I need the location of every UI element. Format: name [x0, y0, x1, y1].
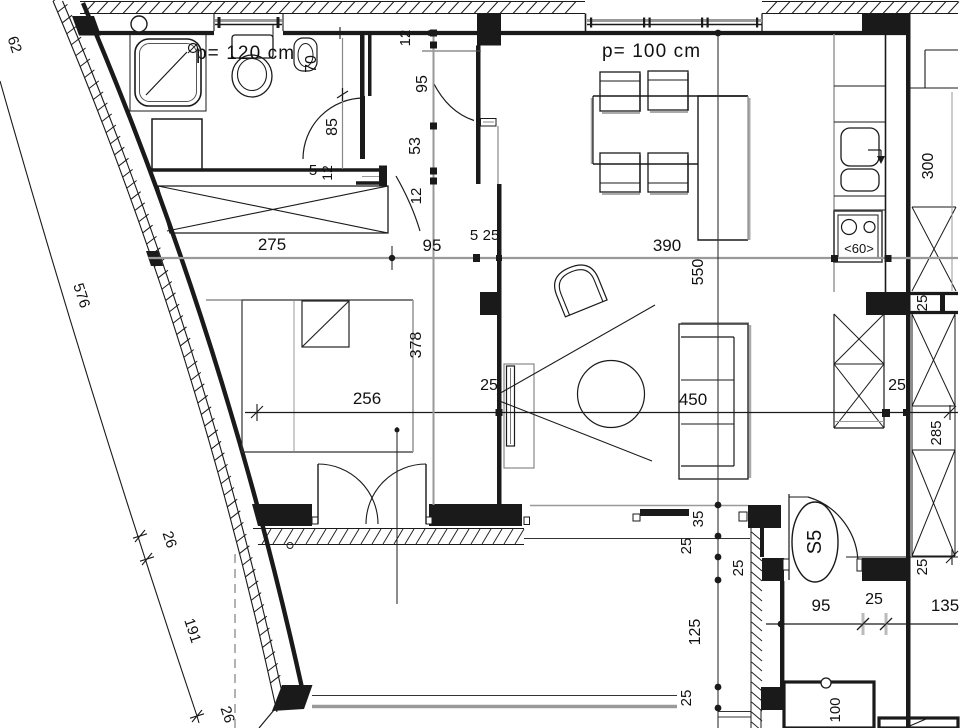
svg-text:100: 100 — [827, 697, 844, 722]
svg-text:550: 550 — [690, 259, 707, 286]
svg-text:378: 378 — [408, 332, 425, 359]
svg-text:85: 85 — [324, 118, 341, 136]
svg-text:25: 25 — [678, 538, 695, 555]
svg-text:95: 95 — [414, 75, 431, 93]
svg-text:25: 25 — [678, 690, 695, 707]
svg-text:25: 25 — [865, 591, 883, 608]
svg-text:S5: S5 — [804, 530, 826, 554]
svg-text:<60>: <60> — [844, 241, 874, 256]
svg-text:70: 70 — [303, 55, 320, 73]
svg-text:5: 5 — [309, 162, 317, 179]
svg-text:25: 25 — [483, 227, 500, 244]
svg-text:95: 95 — [423, 236, 442, 255]
svg-text:300: 300 — [920, 153, 937, 180]
svg-text:p= 100 cm: p= 100 cm — [602, 41, 701, 62]
svg-text:35: 35 — [690, 511, 707, 528]
svg-text:256: 256 — [353, 389, 381, 408]
svg-text:135: 135 — [931, 596, 959, 615]
svg-text:390: 390 — [653, 236, 681, 255]
svg-text:5: 5 — [470, 227, 478, 244]
svg-text:25: 25 — [480, 377, 498, 394]
svg-text:53: 53 — [407, 137, 424, 155]
svg-text:95: 95 — [812, 596, 831, 615]
svg-text:275: 275 — [258, 235, 286, 254]
svg-text:25: 25 — [888, 377, 906, 394]
svg-text:285: 285 — [928, 420, 945, 445]
svg-text:25: 25 — [914, 295, 931, 312]
svg-text:125: 125 — [687, 619, 704, 646]
svg-text:12: 12 — [408, 188, 425, 205]
svg-text:25: 25 — [914, 559, 931, 576]
svg-text:25: 25 — [730, 560, 747, 577]
svg-text:p= 120 cm: p= 120 cm — [196, 43, 295, 64]
svg-text:450: 450 — [679, 390, 707, 409]
svg-text:12: 12 — [397, 30, 414, 47]
svg-text:12: 12 — [319, 165, 335, 181]
